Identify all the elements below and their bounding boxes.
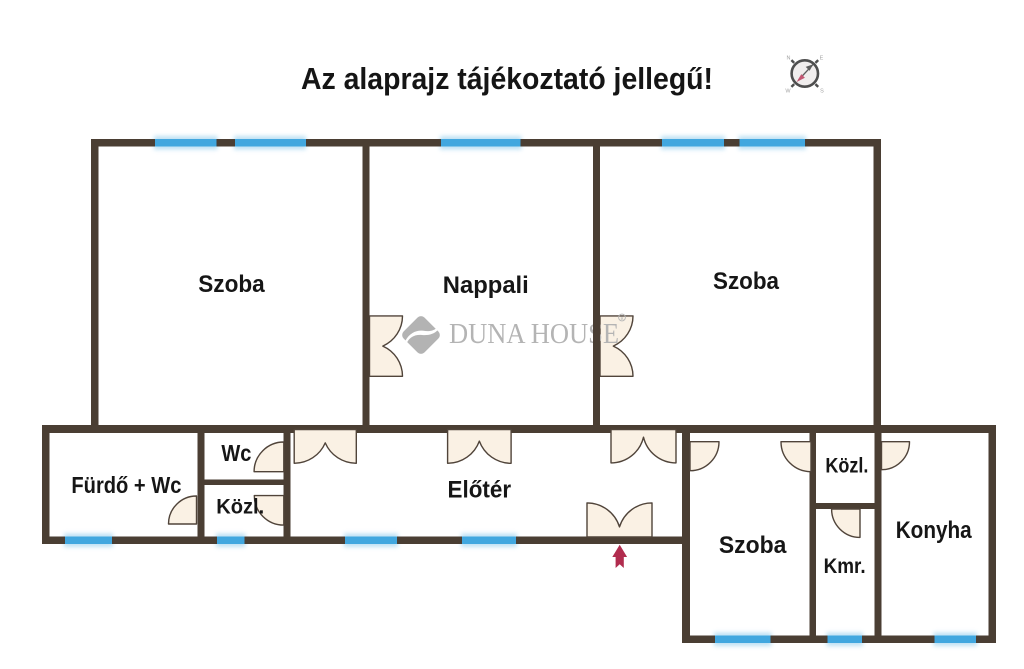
svg-text:Konyha: Konyha bbox=[896, 517, 972, 544]
svg-text:Közl.: Közl. bbox=[825, 453, 868, 477]
svg-text:Fürdő + Wc: Fürdő + Wc bbox=[71, 472, 181, 498]
svg-text:Nappali: Nappali bbox=[443, 272, 529, 299]
svg-text:Kmr.: Kmr. bbox=[824, 554, 866, 578]
svg-text:Előtér: Előtér bbox=[448, 477, 512, 504]
svg-text:Wc: Wc bbox=[221, 440, 251, 466]
svg-text:N: N bbox=[787, 56, 791, 62]
svg-text:S: S bbox=[820, 89, 824, 95]
svg-text:E: E bbox=[820, 56, 824, 62]
svg-text:Közl.: Közl. bbox=[216, 494, 264, 518]
svg-text:Szoba: Szoba bbox=[198, 271, 265, 298]
svg-text:Szoba: Szoba bbox=[719, 532, 787, 559]
svg-text:Az alaprajz tájékoztató jelleg: Az alaprajz tájékoztató jellegű! bbox=[301, 61, 713, 96]
svg-text:Szoba: Szoba bbox=[713, 268, 779, 295]
svg-text:W: W bbox=[785, 89, 791, 95]
